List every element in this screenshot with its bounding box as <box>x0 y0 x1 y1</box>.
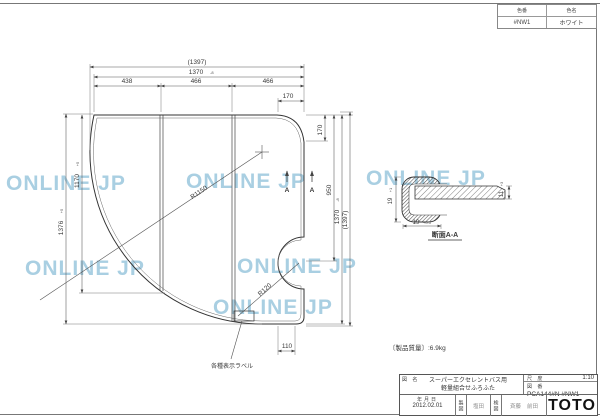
section-dim-panel-thickness-tol: +3 <box>499 181 504 186</box>
drawing-name-cell: 図 名 スーパーエクセレントバス用 軽量組合せふろふた <box>400 375 524 394</box>
section-dim-cap-width-tol: +0.5 <box>423 220 432 225</box>
dim-left-height: 1376 <box>58 220 65 235</box>
color-name-header: 色名 <box>547 5 596 16</box>
cut-label-a1: A <box>285 187 290 194</box>
panel-divider-2 <box>232 116 235 322</box>
scale-cell: 尺 度 1:10 <box>524 375 597 382</box>
dim-corner-width: 170 <box>283 93 294 100</box>
engineering-drawing: R1150 R120 A A <box>0 0 600 417</box>
dim-left-height2-tol: +5 <box>75 161 80 166</box>
date-label: 年月日 <box>400 396 455 403</box>
section-cut-marks: A A <box>285 171 315 194</box>
checker-label: 検図 <box>493 400 500 412</box>
product-name-line2: 軽量組合せふろふた <box>414 385 522 393</box>
dim-overall-width: (1397) <box>188 59 207 66</box>
dim-left-height2: 1170 <box>74 174 81 188</box>
scale-value: 1:10 <box>582 375 594 381</box>
radius-outer-label: R1150 <box>189 184 209 200</box>
title-block: 図 名 スーパーエクセレントバス用 軽量組合せふろふた 尺 度 1:10 図 番… <box>399 374 598 416</box>
color-number-header: 色番 <box>498 5 547 16</box>
drafter-label: 製図 <box>458 400 465 412</box>
section-dim-cap-width: 19 <box>413 220 420 226</box>
dim-height-950: 950 <box>326 184 333 195</box>
drafter-stamp: 塩田 <box>473 402 484 410</box>
checker-label-cell: 検図 <box>491 395 502 416</box>
drafter-label-cell: 製図 <box>456 395 467 416</box>
drawing-number-cell: 図 番 PCA144#N #NW1 <box>524 383 597 394</box>
section-view: 19 +1 19 +0.5 11 +3 断面A-A <box>388 177 512 240</box>
dim-corner-height: 170 <box>317 124 324 135</box>
approval-stamp-cell: 斉藤 前田 <box>502 395 547 416</box>
dim-seg1: 438 <box>122 78 133 85</box>
drawing-number-label: 図 番 <box>527 383 594 390</box>
color-number-value: #NW1 <box>498 17 547 28</box>
weight-note: 〔製品質量〕:6.9kg <box>389 343 446 352</box>
sticker-note-text: 各種表示ラベル <box>211 362 253 370</box>
radius-notch-label: R120 <box>257 282 274 298</box>
dim-width: 1370 <box>189 69 204 76</box>
drafter-stamp-cell: 塩田 <box>467 395 491 416</box>
dim-foot-width: 110 <box>282 343 293 350</box>
cut-label-a2: A <box>310 187 315 194</box>
color-name-value: ホワイト <box>547 17 596 28</box>
brand-cell: TOTO <box>547 395 597 416</box>
checker-stamp: 斉藤 <box>510 402 521 410</box>
panel-divider-1 <box>160 116 163 292</box>
dim-overall-height: (1397) <box>342 211 349 230</box>
sticker-note: 各種表示ラベル <box>211 321 253 370</box>
extension-lines <box>63 64 353 355</box>
approver-stamp: 前田 <box>527 402 538 410</box>
date-cell: 年月日 2012.02.01 <box>400 395 456 416</box>
drawing-sheet: ONLINE JP ONLINE JP ONLINE JP ONLINE JP … <box>0 0 600 417</box>
section-title: 断面A-A <box>432 230 458 239</box>
plan-view-outline <box>90 115 304 324</box>
section-dim-panel-thickness: 11 <box>499 190 505 197</box>
dim-height-tol: -8 <box>335 197 340 201</box>
date-value: 2012.02.01 <box>400 403 455 409</box>
dim-seg2: 466 <box>191 78 202 85</box>
section-panel-strip <box>415 186 505 199</box>
sticker-rect <box>234 311 254 321</box>
section-dim-cap-height: 19 <box>388 197 394 204</box>
section-dim-cap-height-tol: +1 <box>388 187 393 192</box>
scale-label: 尺 度 <box>527 375 544 382</box>
product-name-line1: スーパーエクセレントバス用 <box>414 377 522 385</box>
dim-width-tol: -8 <box>210 70 214 75</box>
title-block-bottom-row: 年月日 2012.02.01 製図 塩田 検図 斉藤 前田 TOTO <box>400 394 597 416</box>
dim-left-height-tol: +5 <box>59 208 64 213</box>
color-table: 色番 色名 #NW1 ホワイト <box>497 4 597 29</box>
dimension-lines <box>66 67 350 351</box>
dim-height: 1370 <box>334 209 341 224</box>
dim-seg3: 466 <box>263 78 274 85</box>
toto-logo: TOTO <box>548 397 596 415</box>
